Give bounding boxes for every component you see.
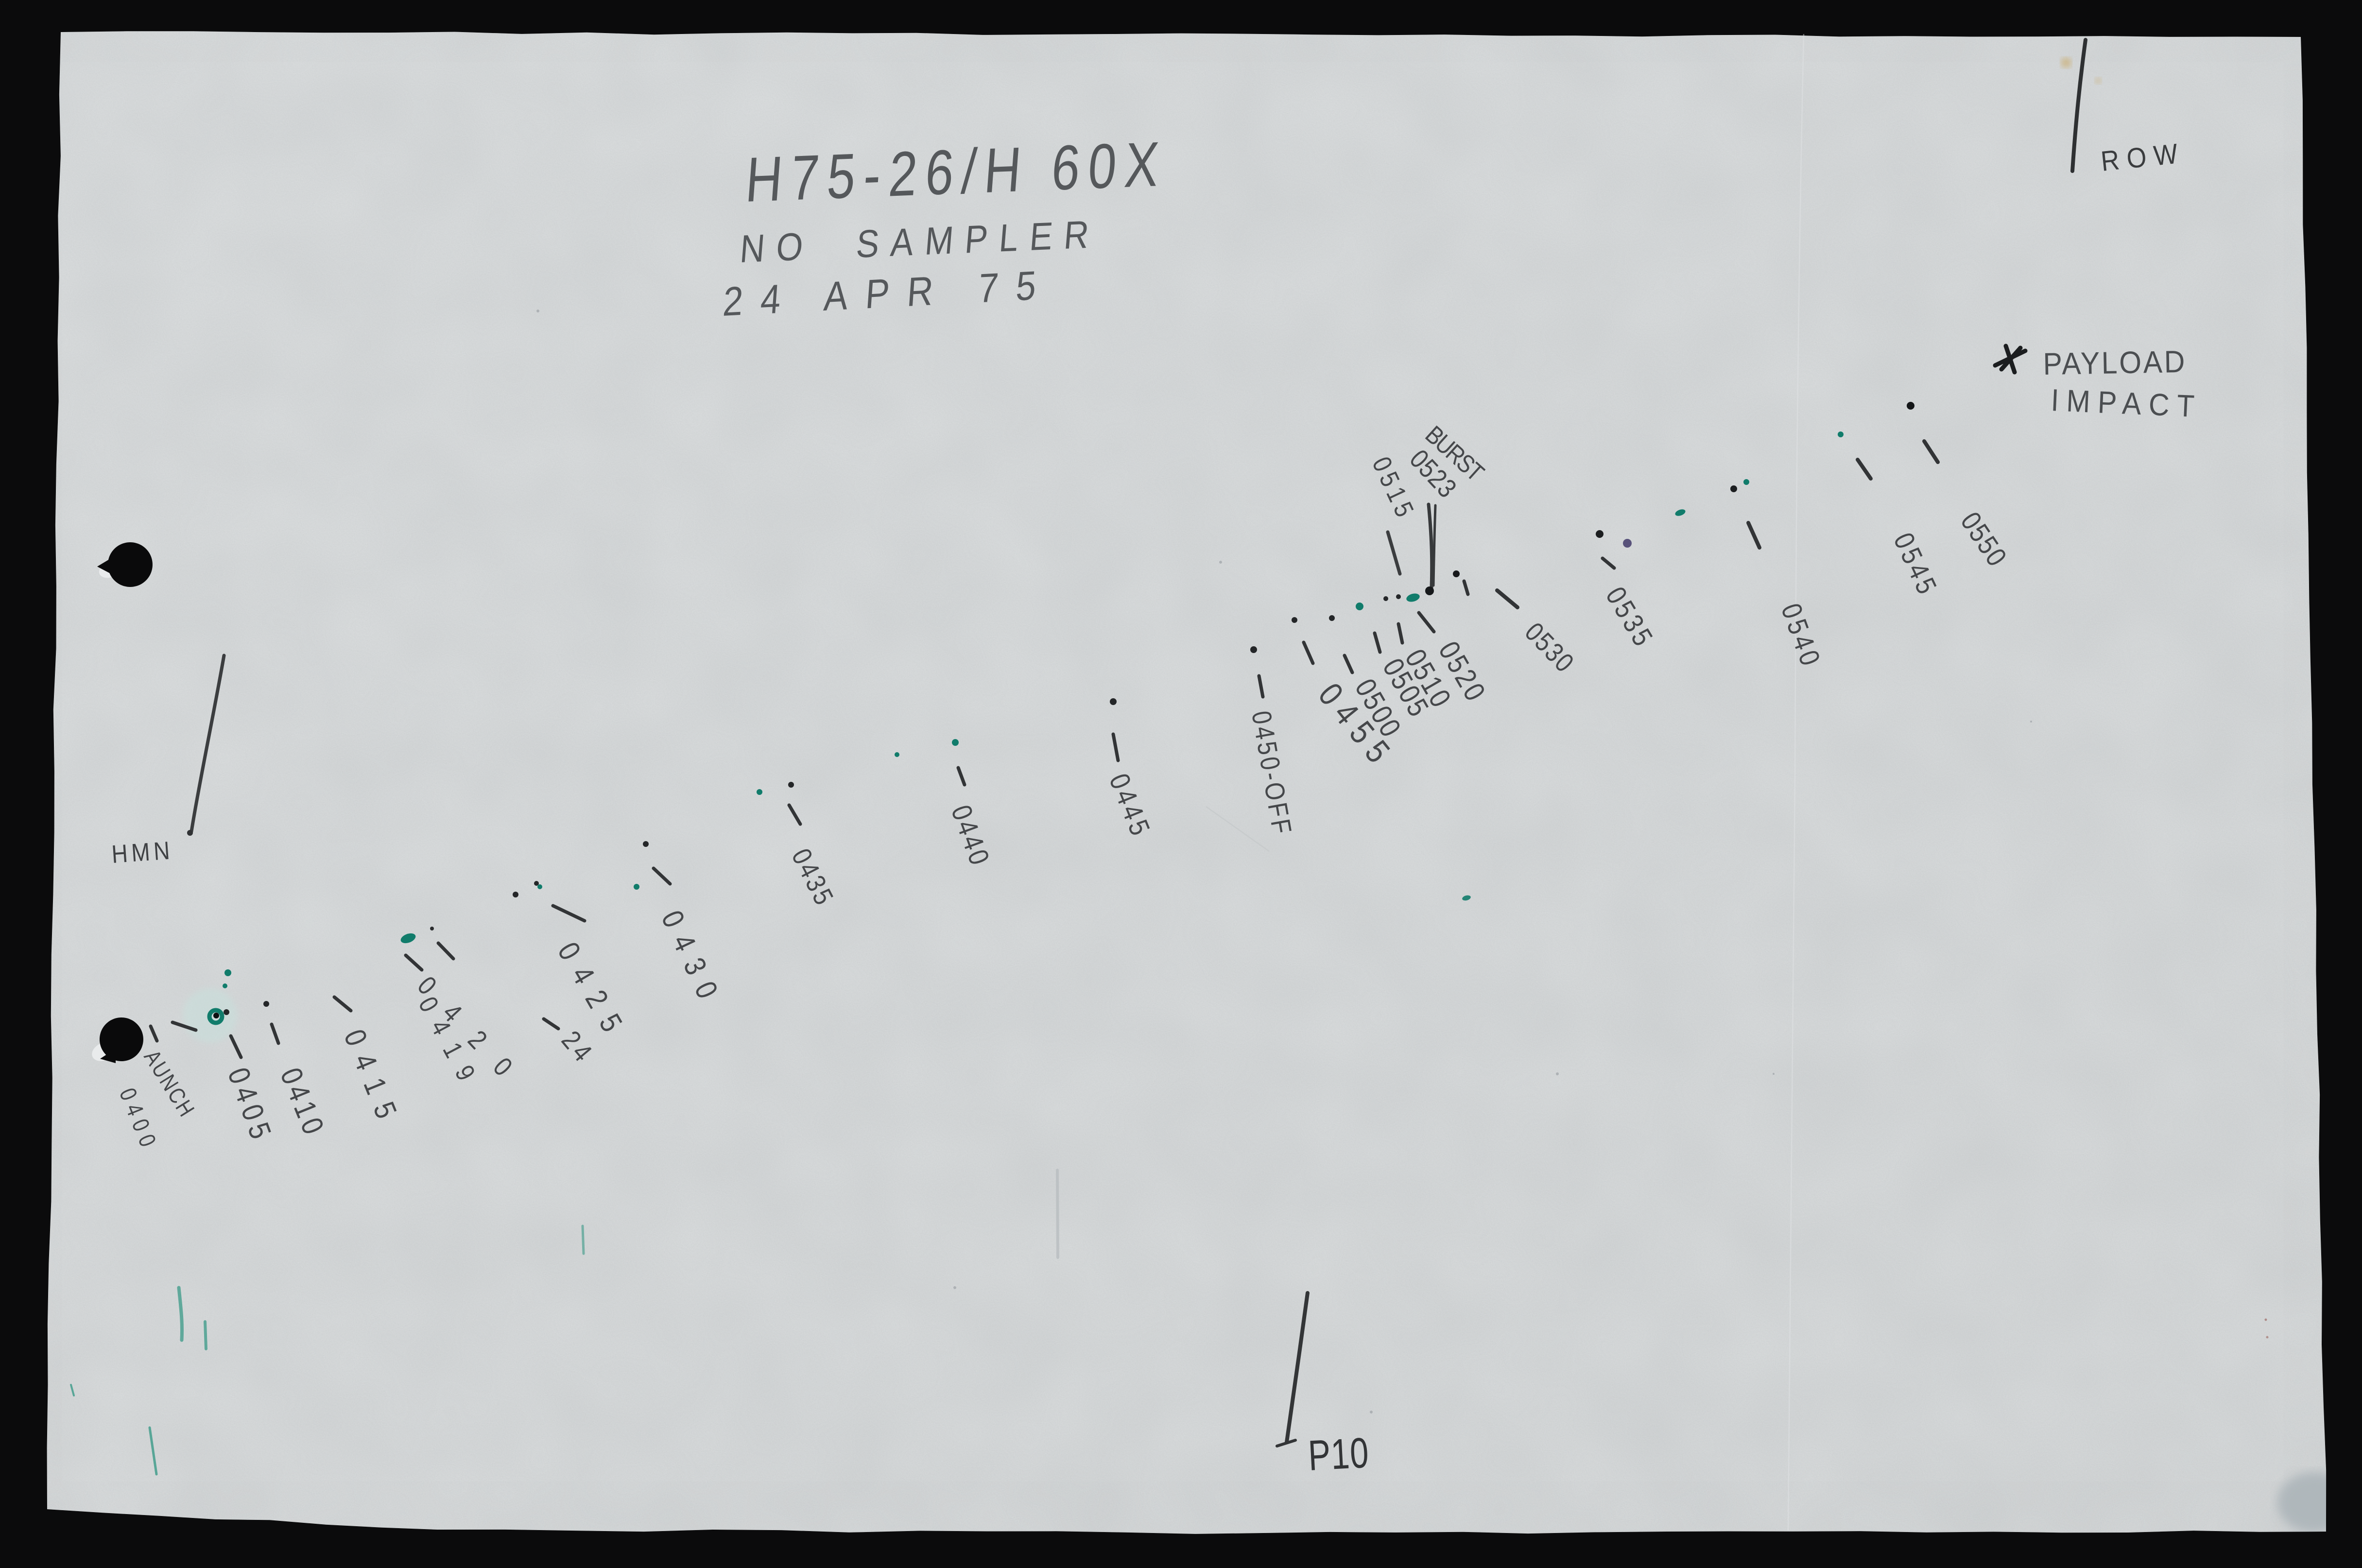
svg-text:P10: P10 bbox=[1307, 1429, 1370, 1479]
svg-text:HMN: HMN bbox=[111, 837, 171, 869]
